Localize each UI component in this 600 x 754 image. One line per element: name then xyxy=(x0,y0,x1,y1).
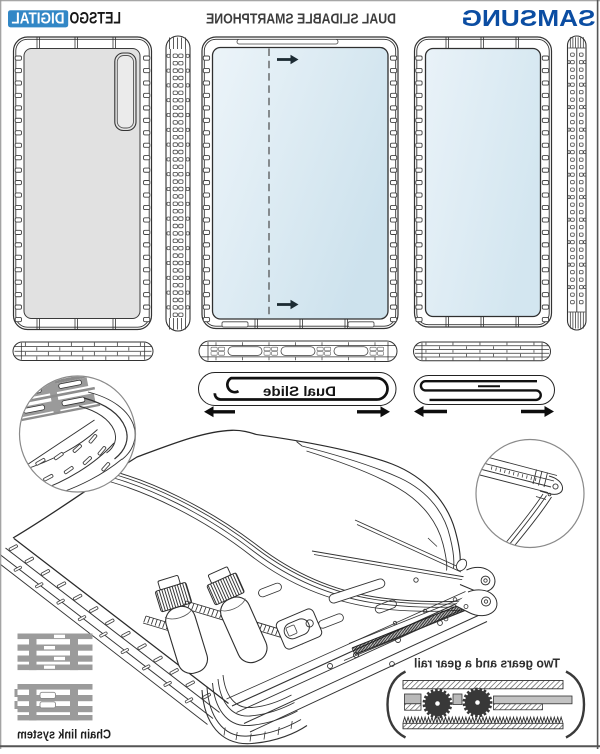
svg-text:Chain link system: Chain link system xyxy=(17,727,111,742)
svg-text:LETSGO: LETSGO xyxy=(70,8,122,27)
svg-text:Two gears and a gear rail: Two gears and a gear rail xyxy=(414,657,560,671)
svg-text:Dual Slide: Dual Slide xyxy=(263,384,336,399)
svg-text:SAMSUNG: SAMSUNG xyxy=(462,5,596,31)
svg-text:DIGITAL: DIGITAL xyxy=(11,10,64,27)
svg-text:DUAL SLIDABLE SMARTPHONE: DUAL SLIDABLE SMARTPHONE xyxy=(206,11,396,27)
